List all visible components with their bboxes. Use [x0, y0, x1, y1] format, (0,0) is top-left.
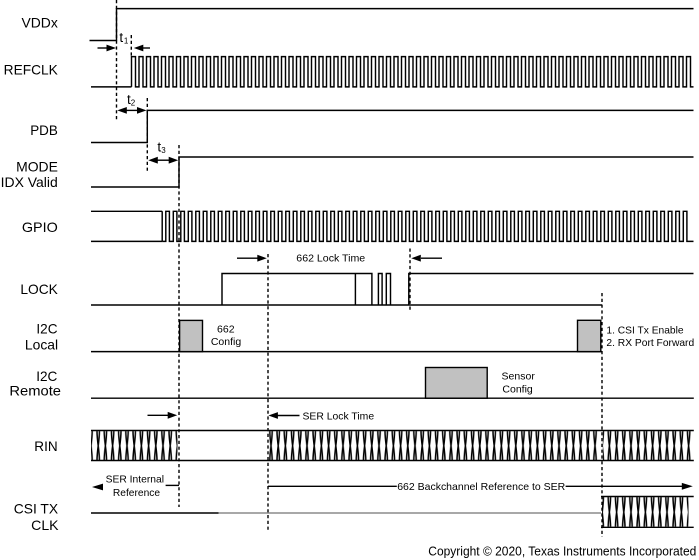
svg-text:662 Backchannel Reference to S: 662 Backchannel Reference to SER	[397, 481, 565, 493]
svg-text:1. CSI Tx Enable: 1. CSI Tx Enable	[606, 325, 683, 337]
svg-text:IDX Valid: IDX Valid	[1, 175, 58, 190]
svg-text:Remote: Remote	[9, 384, 61, 399]
svg-text:REFCLK: REFCLK	[4, 62, 58, 77]
svg-text:Copyright © 2020, Texas Instru: Copyright © 2020, Texas Instruments Inco…	[428, 544, 696, 559]
svg-text:CSI TX: CSI TX	[14, 502, 58, 517]
svg-text:MODE: MODE	[16, 159, 58, 174]
svg-text:2. RX Port Forward: 2. RX Port Forward	[606, 337, 694, 349]
svg-text:LOCK: LOCK	[20, 282, 57, 297]
svg-text:662: 662	[217, 324, 235, 336]
svg-text:VDDx: VDDx	[22, 16, 58, 31]
svg-text:SER Internal: SER Internal	[106, 473, 164, 485]
svg-text:t: t	[119, 30, 123, 45]
svg-text:3: 3	[161, 146, 166, 155]
svg-text:SER Lock Time: SER Lock Time	[303, 410, 375, 422]
svg-text:Config: Config	[502, 384, 533, 396]
svg-text:Sensor: Sensor	[502, 370, 536, 382]
svg-text:RIN: RIN	[34, 439, 57, 454]
svg-text:I2C: I2C	[36, 369, 57, 384]
svg-text:2: 2	[131, 98, 136, 107]
svg-text:PDB: PDB	[30, 123, 58, 138]
svg-text:662 Lock Time: 662 Lock Time	[296, 253, 365, 265]
svg-text:GPIO: GPIO	[22, 220, 58, 235]
svg-text:CLK: CLK	[31, 518, 58, 533]
svg-text:Local: Local	[25, 338, 58, 353]
svg-text:Reference: Reference	[113, 487, 160, 499]
svg-text:Config: Config	[211, 336, 242, 348]
svg-text:1: 1	[124, 36, 129, 45]
svg-text:I2C: I2C	[36, 321, 57, 336]
